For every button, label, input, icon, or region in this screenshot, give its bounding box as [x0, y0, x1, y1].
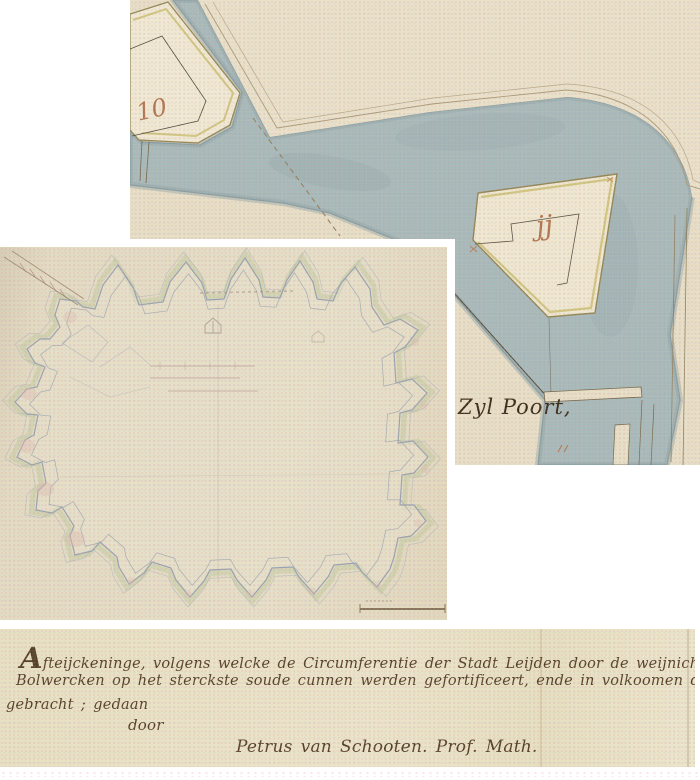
map-photo-city-plan-border [0, 239, 455, 627]
caption-line-4: door [128, 716, 164, 734]
scan-noise-strip [0, 771, 700, 777]
caption-line-1: Afteijckeninge, volgens welcke de Circum… [20, 641, 695, 675]
gate-name-label: Zyl Poort, [457, 395, 572, 419]
caption-signature: Petrus van Schooten. Prof. Math. [236, 737, 538, 757]
paper-edge-line [687, 629, 689, 767]
caption-photo: Afteijckeninge, volgens welcke de Circum… [0, 629, 695, 767]
map-photo-city-plan [0, 247, 447, 620]
caption-line-2: Bolwercken op het sterckste soude cunnen… [16, 673, 695, 689]
scale-bar [360, 601, 445, 613]
jetty-bar [613, 424, 630, 465]
caption-line-3: gebracht ; gedaan [6, 697, 148, 713]
scanned-map-composite: 10 jj Zyl Poort, [0, 0, 700, 780]
star-fort-plan-drawing [0, 247, 447, 620]
paper-fold-line [540, 629, 542, 767]
